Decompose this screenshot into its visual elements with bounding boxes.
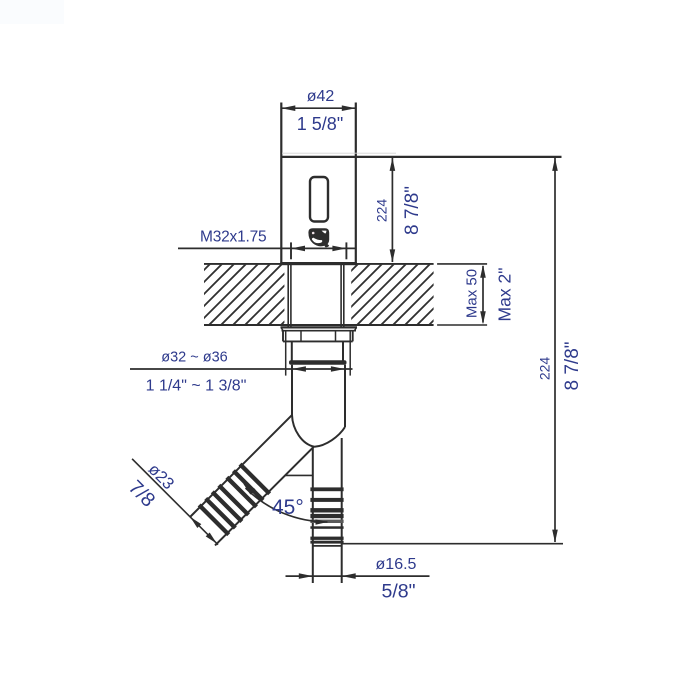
svg-text:5/8": 5/8"	[381, 581, 415, 603]
svg-text:Max 50: Max 50	[464, 269, 481, 318]
svg-text:Max 2": Max 2"	[495, 268, 515, 322]
svg-text:8 7/8": 8 7/8"	[562, 341, 583, 390]
svg-text:1 1/4" ~ 1 3/8": 1 1/4" ~ 1 3/8"	[146, 378, 247, 395]
svg-text:M32x1.75: M32x1.75	[200, 229, 266, 246]
svg-text:8 7/8": 8 7/8"	[402, 186, 423, 235]
svg-text:224: 224	[374, 199, 390, 223]
svg-text:45°: 45°	[272, 496, 304, 519]
svg-text:ø42: ø42	[307, 88, 335, 105]
svg-text:224: 224	[537, 357, 553, 381]
svg-text:1 5/8": 1 5/8"	[297, 114, 343, 134]
svg-text:ø32 ~ ø36: ø32 ~ ø36	[161, 350, 228, 366]
svg-text:ø16.5: ø16.5	[376, 556, 417, 573]
